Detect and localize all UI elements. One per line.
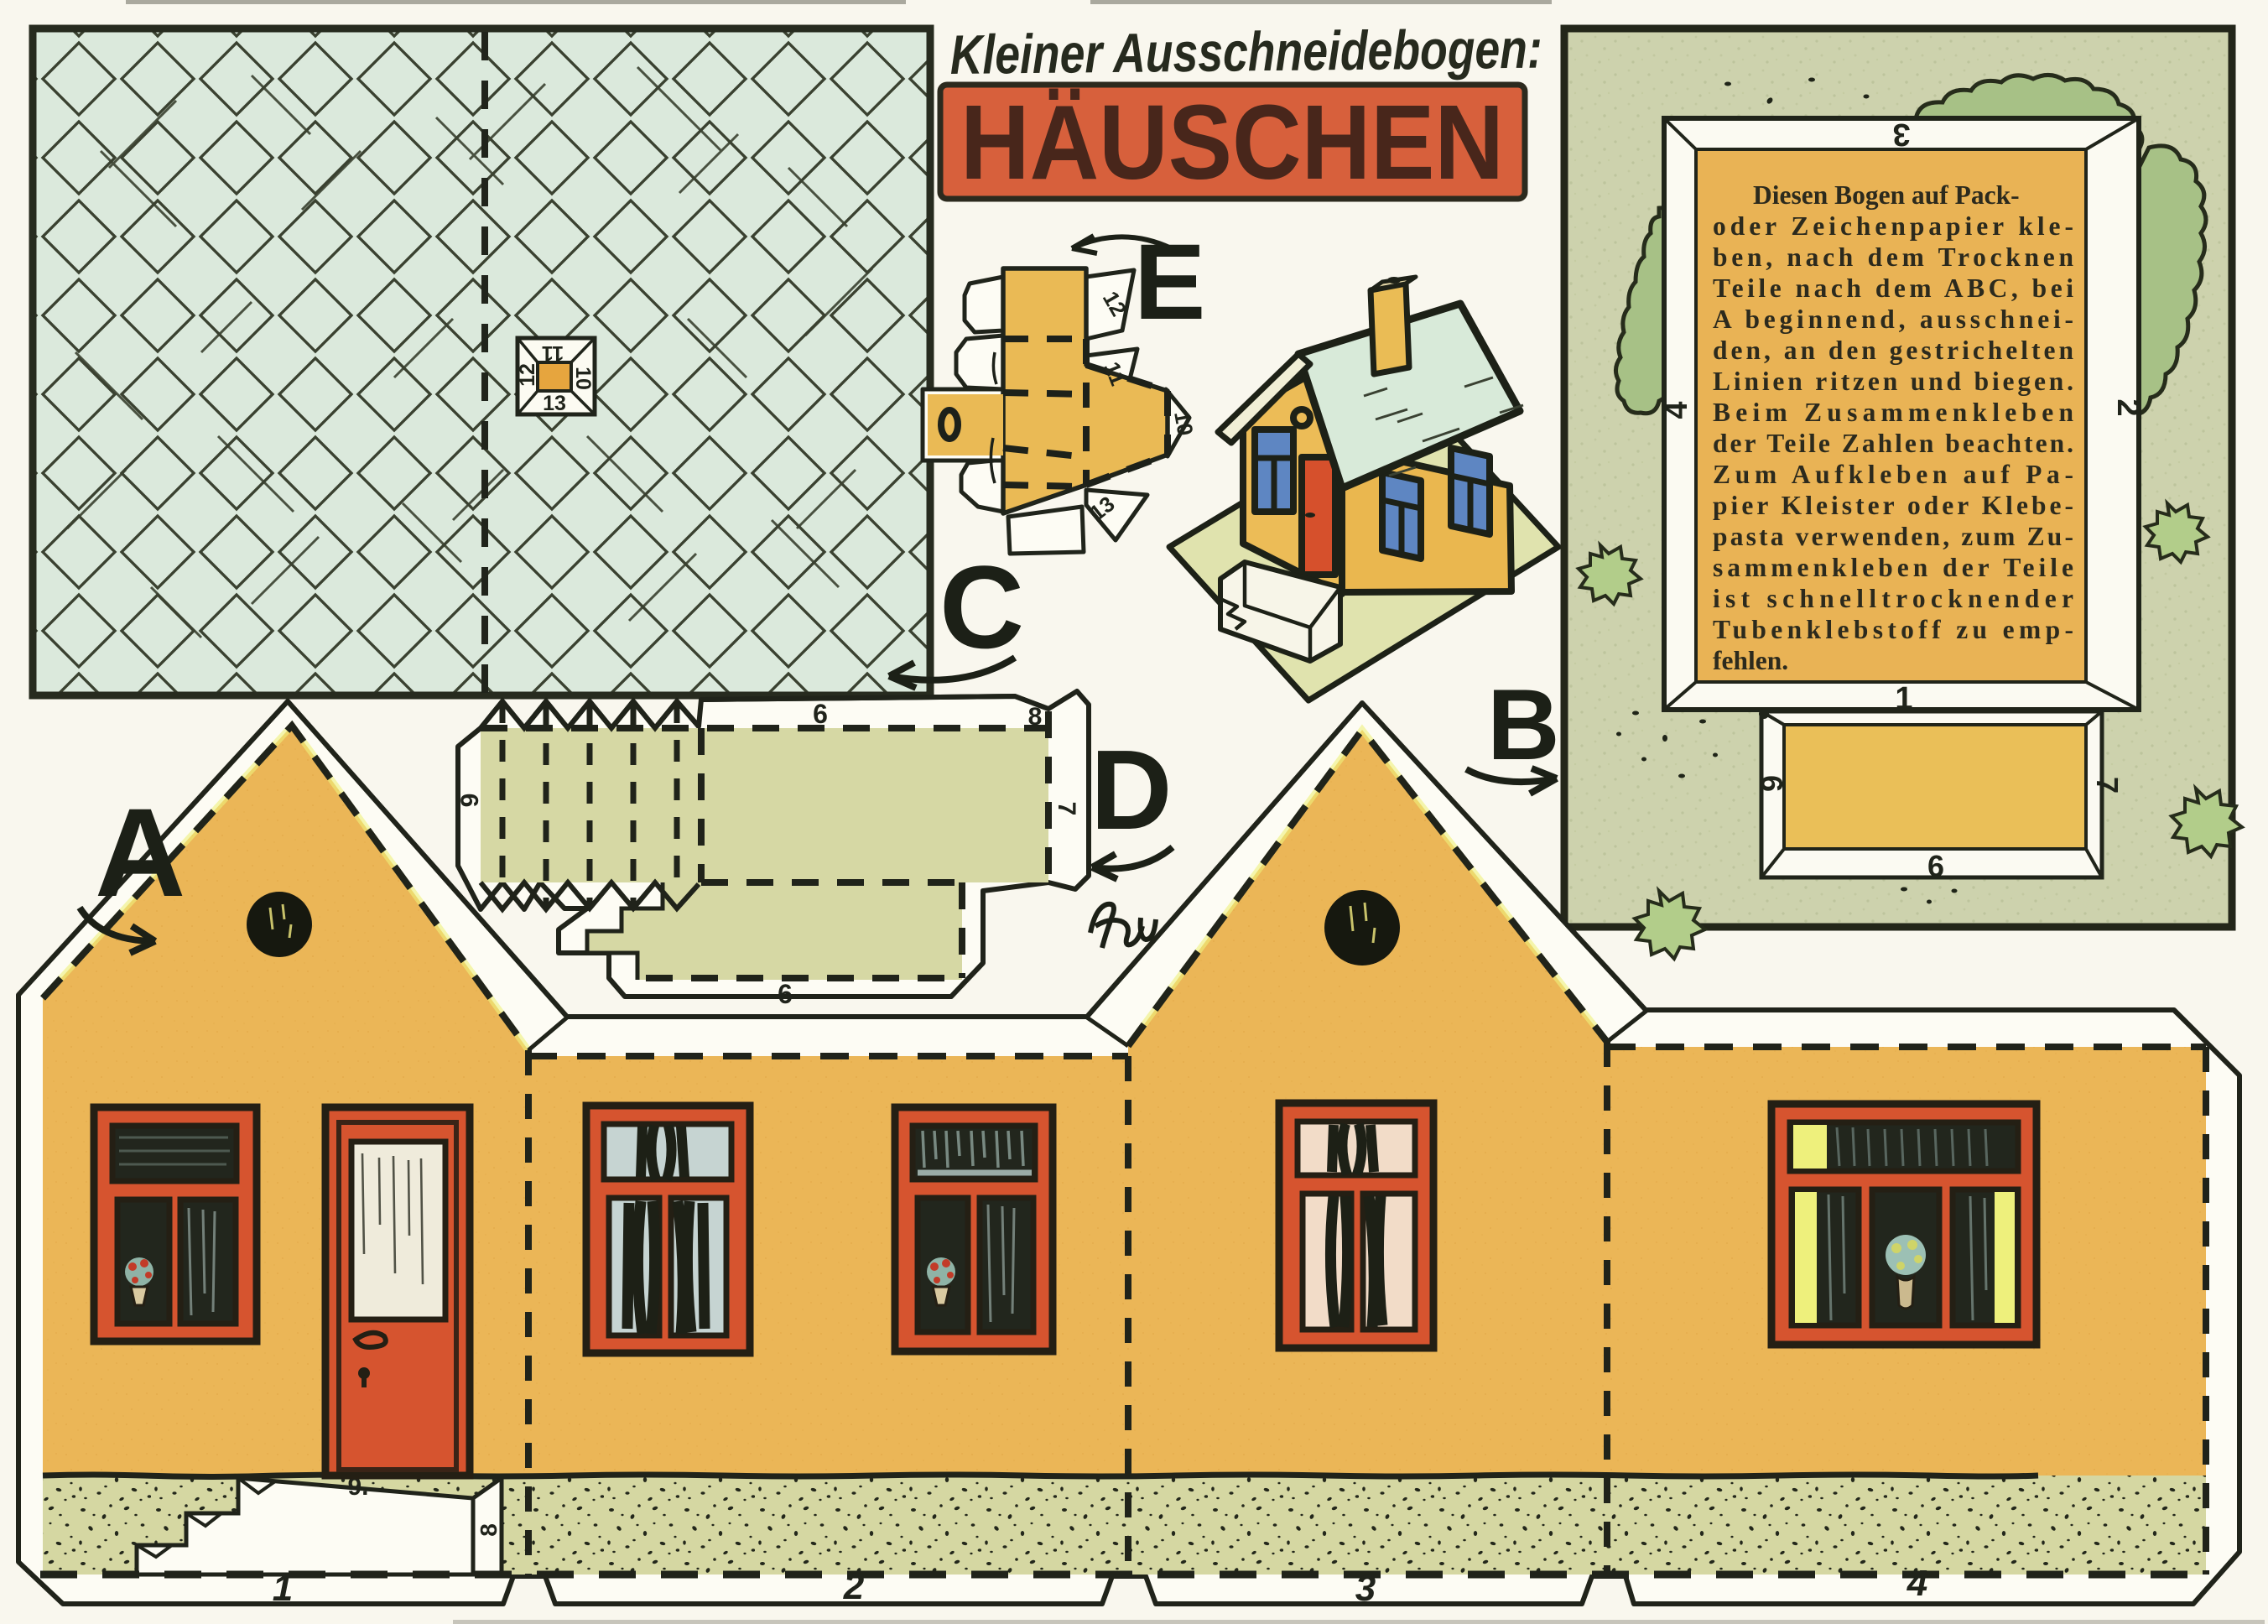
svg-text:6: 6 (778, 979, 793, 1009)
svg-text:2: 2 (843, 1566, 865, 1607)
svg-text:11: 11 (542, 341, 564, 365)
svg-text:A beginnend, ausschnei-: A beginnend, ausschnei- (1713, 304, 2073, 334)
svg-text:13: 13 (543, 392, 566, 415)
svg-text:10: 10 (571, 367, 595, 390)
svg-text:9: 9 (1755, 775, 1789, 792)
svg-text:C: C (939, 541, 1024, 673)
svg-text:7: 7 (1053, 802, 1080, 816)
svg-text:pier Kleister oder Klebe-: pier Kleister oder Klebe- (1713, 491, 2073, 520)
svg-text:HÄUSCHEN: HÄUSCHEN (960, 83, 1504, 201)
svg-text:Diesen Bogen auf Pack-: Diesen Bogen auf Pack- (1753, 180, 2020, 210)
svg-text:8: 8 (1028, 703, 1043, 731)
svg-text:3: 3 (1892, 117, 1910, 152)
svg-text:10: 10 (1169, 409, 1199, 438)
svg-text:D: D (1090, 726, 1173, 853)
svg-text:oder Zeichenpapier kle-: oder Zeichenpapier kle- (1713, 211, 2073, 241)
svg-text:3: 3 (1355, 1568, 1376, 1609)
svg-text:12: 12 (516, 363, 539, 387)
svg-text:2: 2 (2110, 398, 2146, 416)
svg-text:A: A (95, 782, 185, 923)
svg-text:8: 8 (476, 1523, 502, 1537)
svg-text:4: 4 (1659, 401, 1694, 419)
svg-text:fehlen.: fehlen. (1713, 646, 1788, 675)
svg-text:6: 6 (813, 699, 828, 729)
svg-text:6: 6 (1927, 849, 1944, 883)
svg-text:9: 9 (456, 794, 484, 808)
svg-text:pasta verwenden, zum Zu-: pasta verwenden, zum Zu- (1713, 522, 2073, 551)
svg-text:4: 4 (1906, 1563, 1927, 1604)
svg-text:ben, nach dem Trocknen: ben, nach dem Trocknen (1713, 242, 2073, 272)
svg-text:1: 1 (273, 1568, 293, 1609)
svg-text:Kleiner Ausschneidebogen:: Kleiner Ausschneidebogen: (949, 18, 1542, 86)
svg-text:7: 7 (2090, 777, 2125, 794)
svg-text:B: B (1487, 669, 1560, 781)
svg-text:Linien ritzen und biegen.: Linien ritzen und biegen. (1713, 367, 2073, 396)
